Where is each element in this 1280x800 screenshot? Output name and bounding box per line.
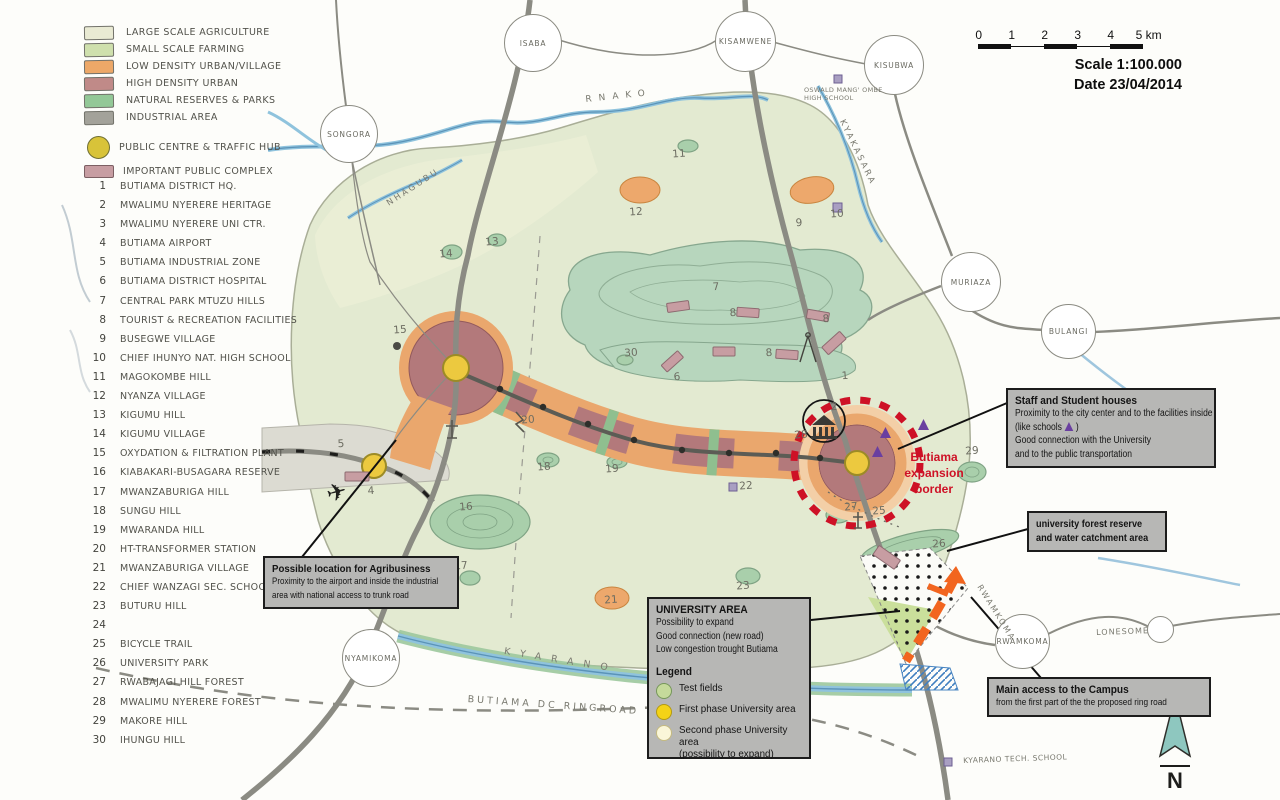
location-label: MWANZABURIGA HILL	[120, 487, 229, 498]
location-row: 9 BUSEGWE VILLAGE	[88, 333, 297, 352]
school-triangle-icon	[1065, 422, 1074, 431]
location-label: MWALIMU NYERERE HERITAGE	[120, 200, 271, 211]
location-label: MAKORE HILL	[120, 716, 187, 727]
location-number: 7	[88, 295, 106, 307]
location-label: MWANZABURIGA VILLAGE	[120, 563, 249, 574]
location-label: UNIVERSITY PARK	[120, 658, 208, 669]
compass-n-label: N	[1167, 768, 1183, 793]
location-number: 21	[88, 562, 106, 574]
location-label: KIGUMU HILL	[120, 410, 185, 421]
location-label: MWARANDA HILL	[120, 525, 205, 536]
location-number: 19	[88, 524, 106, 536]
legend-label: PUBLIC CENTRE & TRAFFIC HUB	[119, 142, 281, 153]
location-row: 17 MWANZABURIGA HILL	[88, 486, 297, 505]
location-number: 5	[88, 256, 106, 268]
location-label: MAGOKOMBE HILL	[120, 372, 211, 383]
box-legend-row: First phase University area	[656, 704, 802, 720]
location-label: CHIEF WANZAGI SEC. SCHOOL	[120, 582, 272, 593]
legend-row: LOW DENSITY URBAN/VILLAGE	[84, 58, 281, 75]
location-row: 16 KIABAKARI-BUSAGARA RESERVE	[88, 466, 297, 485]
legend-swatch	[84, 76, 114, 91]
legend-row: NATURAL RESERVES & PARKS	[84, 92, 281, 109]
location-label: BUTIAMA AIRPORT	[120, 238, 212, 249]
location-row: 6 BUTIAMA DISTRICT HOSPITAL	[88, 275, 297, 294]
callout-title: Staff and Student houses	[1015, 395, 1192, 407]
location-row: 27 RWABAJAGI HILL FOREST	[88, 676, 297, 695]
legend-row: INDUSTRIAL AREA	[84, 109, 281, 126]
location-number: 23	[88, 600, 106, 612]
location-number: 13	[88, 409, 106, 421]
location-label: BUTIAMA DISTRICT HQ.	[120, 181, 237, 192]
location-label: KIABAKARI-BUSAGARA RESERVE	[120, 467, 280, 478]
location-row: 5 BUTIAMA INDUSTRIAL ZONE	[88, 256, 297, 275]
box-legend-row: Second phase University area (possibilit…	[656, 725, 802, 761]
location-row: 24	[88, 619, 297, 638]
location-number: 9	[88, 333, 106, 345]
scalebar-tick: 5 km	[1136, 28, 1162, 42]
location-number: 8	[88, 314, 106, 326]
location-row: 29 MAKORE HILL	[88, 715, 297, 734]
legend-label: LOW DENSITY URBAN/VILLAGE	[126, 61, 281, 72]
legend-label: INDUSTRIAL AREA	[126, 112, 218, 123]
legend-row: LARGE SCALE AGRICULTURE	[84, 24, 281, 41]
map-scale: Scale 1:100.000	[978, 55, 1182, 75]
callout-agribusiness: Possible location for Agribusiness Proxi…	[263, 556, 459, 609]
location-row: 30 IHUNGU HILL	[88, 734, 297, 753]
location-row: 14 KIGUMU VILLAGE	[88, 428, 297, 447]
location-label: MWALIMU NYERERE UNI CTR.	[120, 219, 266, 230]
central-park	[562, 241, 872, 382]
location-number: 3	[88, 218, 106, 230]
box-legend-row: Test fields	[656, 683, 802, 699]
location-label: BUTURU HILL	[120, 601, 187, 612]
location-number: 1	[88, 180, 106, 192]
legend-label: HIGH DENSITY URBAN	[126, 78, 238, 89]
location-row: 26 UNIVERSITY PARK	[88, 657, 297, 676]
location-row: 25 BICYCLE TRAIL	[88, 638, 297, 657]
location-row: 12 NYANZA VILLAGE	[88, 390, 297, 409]
location-number: 25	[88, 638, 106, 650]
location-label: BUTIAMA INDUSTRIAL ZONE	[120, 257, 261, 268]
location-number: 29	[88, 715, 106, 727]
location-number: 22	[88, 581, 106, 593]
location-number: 24	[88, 619, 106, 631]
location-number: 14	[88, 428, 106, 440]
water-pond	[900, 664, 958, 690]
legend-row: HIGH DENSITY URBAN	[84, 75, 281, 92]
scalebar-tick: 0	[975, 28, 982, 42]
location-number: 18	[88, 505, 106, 517]
scalebar: 0 1 2 3 4 5 km Scale 1:100.000 Date 23/0…	[978, 28, 1188, 95]
legend-swatch	[84, 110, 114, 125]
location-label: BUSEGWE VILLAGE	[120, 334, 216, 345]
location-label: OXYDATION & FILTRATION PLANT	[120, 448, 284, 459]
map-date: Date 23/04/2014	[978, 75, 1182, 95]
legend-label: SMALL SCALE FARMING	[126, 44, 245, 55]
pencil-mark	[62, 205, 90, 302]
location-row: 4 BUTIAMA AIRPORT	[88, 237, 297, 256]
legend-label: LARGE SCALE AGRICULTURE	[126, 27, 270, 38]
location-row: 1 BUTIAMA DISTRICT HQ.	[88, 180, 297, 199]
pencil-mark	[70, 330, 90, 392]
location-label: CHIEF IHUNYO NAT. HIGH SCHOOL	[120, 353, 291, 364]
public-complex-icon	[84, 165, 114, 178]
legend-swatch	[84, 25, 114, 40]
location-row: 3 MWALIMU NYERERE UNI CTR.	[88, 218, 297, 237]
box-legend-circle	[656, 683, 672, 699]
location-number: 17	[88, 486, 106, 498]
box-legend-circle	[656, 704, 672, 720]
scalebar-bar	[978, 44, 1143, 49]
location-number: 15	[88, 447, 106, 459]
box-legend-circle	[656, 725, 672, 741]
location-label: NYANZA VILLAGE	[120, 391, 206, 402]
location-label: MWALIMU NYERERE FOREST	[120, 697, 261, 708]
box-legend-title: Legend	[656, 666, 790, 678]
legend-label: IMPORTANT PUBLIC COMPLEX	[123, 166, 273, 177]
location-number: 27	[88, 676, 106, 688]
butiama-masterplan-map: ✈	[0, 0, 1280, 800]
location-number: 10	[88, 352, 106, 364]
legend-complex-row: IMPORTANT PUBLIC COMPLEX	[84, 160, 281, 182]
callout-forest-reserve: university forest reserve and water catc…	[1027, 511, 1167, 552]
location-label: BUTIAMA DISTRICT HOSPITAL	[120, 276, 267, 287]
location-number: 12	[88, 390, 106, 402]
location-number: 16	[88, 466, 106, 478]
location-row: 10 CHIEF IHUNYO NAT. HIGH SCHOOL	[88, 352, 297, 371]
location-label: SUNGU HILL	[120, 506, 181, 517]
location-number: 4	[88, 237, 106, 249]
location-label: BICYCLE TRAIL	[120, 639, 193, 650]
location-row: 11 MAGOKOMBE HILL	[88, 371, 297, 390]
location-label: RWABAJAGI HILL FOREST	[120, 677, 244, 688]
location-row: 13 KIGUMU HILL	[88, 409, 297, 428]
location-number: 20	[88, 543, 106, 555]
location-number: 26	[88, 657, 106, 669]
legend-row: SMALL SCALE FARMING	[84, 41, 281, 58]
location-number: 30	[88, 734, 106, 746]
legend-label: NATURAL RESERVES & PARKS	[126, 95, 275, 106]
locations-list: 1 BUTIAMA DISTRICT HQ. 2 MWALIMU NYERERE…	[88, 180, 297, 753]
location-row: 7 CENTRAL PARK MTUZU HILLS	[88, 295, 297, 314]
hub-icon	[87, 136, 110, 159]
location-label: TOURIST & RECREATION FACILITIES	[120, 315, 297, 326]
scalebar-tick: 3	[1074, 28, 1081, 42]
callout-university-area: UNIVERSITY AREA Possibility to expand Go…	[647, 597, 811, 759]
legend-hub-row: PUBLIC CENTRE & TRAFFIC HUB	[84, 136, 281, 158]
scalebar-tick: 2	[1041, 28, 1048, 42]
callout-staff-houses: Staff and Student houses Proximity to th…	[1006, 388, 1216, 468]
location-label: HT-TRANSFORMER STATION	[120, 544, 256, 555]
legend-panel: LARGE SCALE AGRICULTURE SMALL SCALE FARM…	[84, 24, 281, 182]
location-number: 28	[88, 696, 106, 708]
location-number: 6	[88, 275, 106, 287]
scalebar-tick: 1	[1008, 28, 1015, 42]
legend-swatch	[84, 59, 114, 74]
location-row: 8 TOURIST & RECREATION FACILITIES	[88, 314, 297, 333]
legend-swatch	[84, 42, 114, 57]
filtration-plant-dot	[393, 342, 401, 350]
location-row: 2 MWALIMU NYERERE HERITAGE	[88, 199, 297, 218]
location-label: IHUNGU HILL	[120, 735, 185, 746]
location-label: CENTRAL PARK MTUZU HILLS	[120, 296, 265, 307]
location-row: 15 OXYDATION & FILTRATION PLANT	[88, 447, 297, 466]
location-number: 2	[88, 199, 106, 211]
scalebar-tick: 4	[1107, 28, 1114, 42]
callout-main-access: Main access to the Campus from the first…	[987, 677, 1211, 717]
river	[1098, 558, 1240, 585]
location-row: 28 MWALIMU NYERERE FOREST	[88, 696, 297, 715]
legend-swatch	[84, 93, 114, 108]
location-row: 18 SUNGU HILL	[88, 505, 297, 524]
location-label: KIGUMU VILLAGE	[120, 429, 206, 440]
location-number: 11	[88, 371, 106, 383]
location-row: 19 MWARANDA HILL	[88, 524, 297, 543]
